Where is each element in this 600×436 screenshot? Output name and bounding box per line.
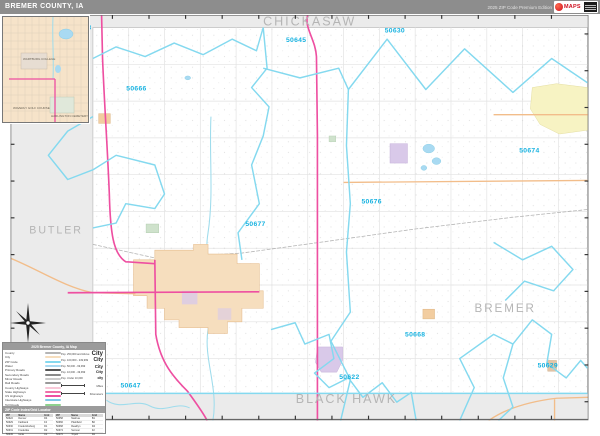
page-title: BREMER COUNTY, IA [5, 3, 84, 10]
scale-bar-miles: Miles [61, 382, 103, 389]
population-range: Pop. 50,000 - 99,999 [61, 365, 85, 368]
compass-rose [8, 301, 48, 345]
legend-item-swatch [45, 404, 61, 406]
scale-km-label: Kilometers [90, 392, 103, 396]
county-label-black-hawk: BLACK HAWK [296, 392, 397, 406]
population-city-sample: City [96, 370, 103, 374]
county-label-bremer: BREMER [475, 302, 536, 315]
legend-population-list: Pop. 250,000 and AboveCityPop. 100,000 -… [61, 351, 103, 405]
city-inset-map: WARTBURG COLLEGE WAVERLY GOLF COURSE HAR… [2, 16, 89, 123]
index-cell: D2 [91, 433, 103, 436]
legend-item-swatch [45, 365, 61, 367]
index-cell: Tripoli [70, 433, 91, 436]
index-row-50676: 50676TripoliD2 [55, 433, 103, 436]
population-range: Pop. 10,000 - 49,999 [61, 371, 85, 374]
logo-text: MAPS [564, 4, 584, 10]
zip-label-50622: 50622 [339, 374, 359, 381]
zip-index-title: ZIP Code Index/Grid Locator [3, 406, 105, 413]
zip-label-50674: 50674 [519, 147, 539, 154]
county-label-butler: BUTLER [29, 225, 83, 237]
index-cell: Ionia [17, 433, 43, 436]
inset-pond [59, 29, 73, 39]
zip-label-50645: 50645 [286, 37, 306, 44]
zip-label-50647: 50647 [120, 383, 140, 390]
legend-item-swatch [45, 361, 61, 363]
population-range: Pop. Under 10,000 [61, 377, 83, 380]
legend-item-swatch [45, 399, 61, 401]
map-page: BREMER COUNTY, IA 2025 ZIP Code Premium … [0, 0, 600, 436]
legend-item-swatch [45, 352, 61, 354]
index-row-50645: 50645IoniaC1 [5, 433, 53, 436]
population-city-sample: City [95, 364, 103, 369]
legend-item-swatch [45, 356, 61, 358]
index-cell: 50676 [55, 433, 70, 436]
population-range: Pop. 100,000 - 249,999 [61, 359, 88, 362]
inset-cemetery-block [50, 97, 74, 113]
zip-label-50630: 50630 [385, 27, 405, 34]
legend-title: 2025 Bremer County, IA Map [3, 343, 105, 350]
city-denver [315, 347, 342, 372]
publisher-logo: MAPS [554, 1, 598, 13]
city-plainfield [146, 224, 159, 233]
legend-item-label: Toll Roads [5, 403, 19, 407]
edition-label: 2025 ZIP Code Premium Edition [488, 5, 552, 10]
city-patch [218, 308, 232, 320]
population-city-sample: City [94, 357, 103, 363]
zip-index-table: ZIPNameGrid50622DenverD450629FairbankF45… [3, 413, 105, 436]
zip-label-50666: 50666 [126, 85, 146, 92]
city-horton [99, 114, 111, 124]
index-cell: 50645 [5, 433, 17, 436]
legend-item-swatch [45, 369, 61, 371]
inset-college-block [21, 53, 47, 69]
globe-icon [555, 3, 563, 11]
city-readlyn [423, 309, 435, 319]
city-tripoli [390, 144, 407, 163]
scale-bar-km: Kilometers [61, 390, 103, 397]
city-small [329, 136, 336, 142]
county-label-chickasaw: CHICKASAW [263, 15, 356, 29]
inset-label-cemetery: HARLINGTON CEMETERY [51, 114, 88, 118]
legend-item-swatch [45, 387, 61, 389]
title-bar: BREMER COUNTY, IA 2025 ZIP Code Premium … [0, 0, 600, 14]
zip-label-50668: 50668 [405, 331, 425, 338]
farmland-texture [93, 28, 588, 394]
logo-badge [584, 2, 597, 12]
legend-panel: 2025 Bremer County, IA Map CountyCityZIP… [2, 342, 106, 434]
scale-miles-label: Miles [96, 384, 103, 388]
zip-label-50676: 50676 [361, 199, 381, 206]
population-range: Pop. 250,000 and Above [61, 353, 89, 356]
legend-symbol-list: CountyCityZIP CodeWaterPrimary RoadsSeco… [5, 351, 61, 405]
legend-item-swatch [45, 391, 61, 393]
inset-label-college: WARTBURG COLLEGE [23, 57, 55, 61]
index-row-50630: 50630FredericksburgD1 [5, 425, 53, 429]
legend-item-swatch [45, 374, 61, 376]
legend-item-swatch [45, 378, 61, 380]
inset-pond [55, 65, 61, 73]
inset-label-golf: WAVERLY GOLF COURSE [13, 106, 50, 110]
population-class-row: Pop. Under 10,000city [61, 375, 103, 381]
population-city-sample: city [98, 376, 104, 380]
legend-item-swatch [45, 382, 61, 384]
legend-item-swatch [45, 395, 61, 397]
legend-item-toll-roads: Toll Roads [5, 403, 61, 407]
zip-label-50629: 50629 [538, 362, 558, 369]
zip-label-50677: 50677 [245, 221, 265, 228]
index-cell: C1 [43, 433, 53, 436]
